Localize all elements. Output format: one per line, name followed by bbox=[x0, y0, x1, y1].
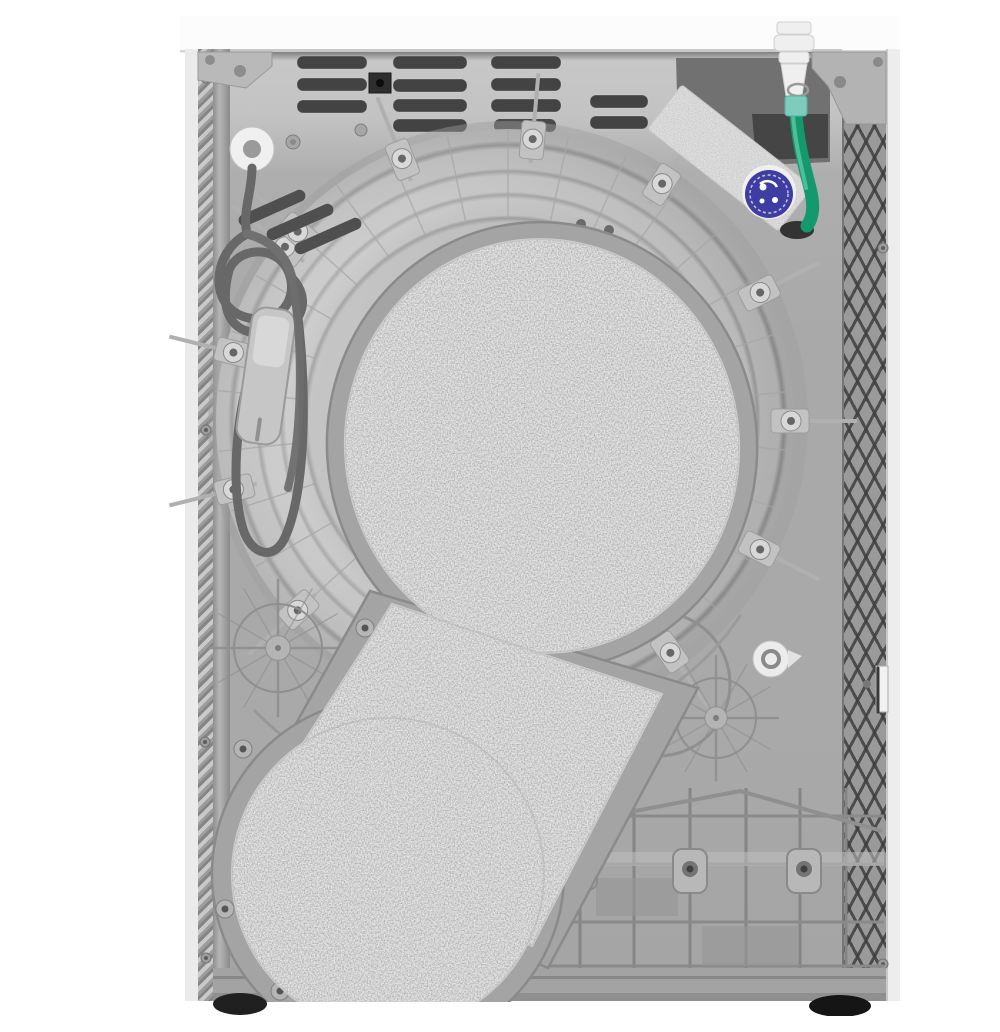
side-lattice bbox=[842, 52, 890, 998]
dryer-rear-photo: Groups of horizontal cooling slots along… bbox=[40, 16, 1000, 1016]
worktop-panel bbox=[180, 16, 898, 52]
right-side-panel bbox=[886, 49, 900, 1001]
worktop-shadow bbox=[198, 52, 886, 61]
left-rail bbox=[213, 49, 230, 1001]
back-panel bbox=[230, 49, 842, 1001]
left-edge-stiffener bbox=[198, 49, 213, 1001]
left-side-panel bbox=[185, 49, 199, 1001]
